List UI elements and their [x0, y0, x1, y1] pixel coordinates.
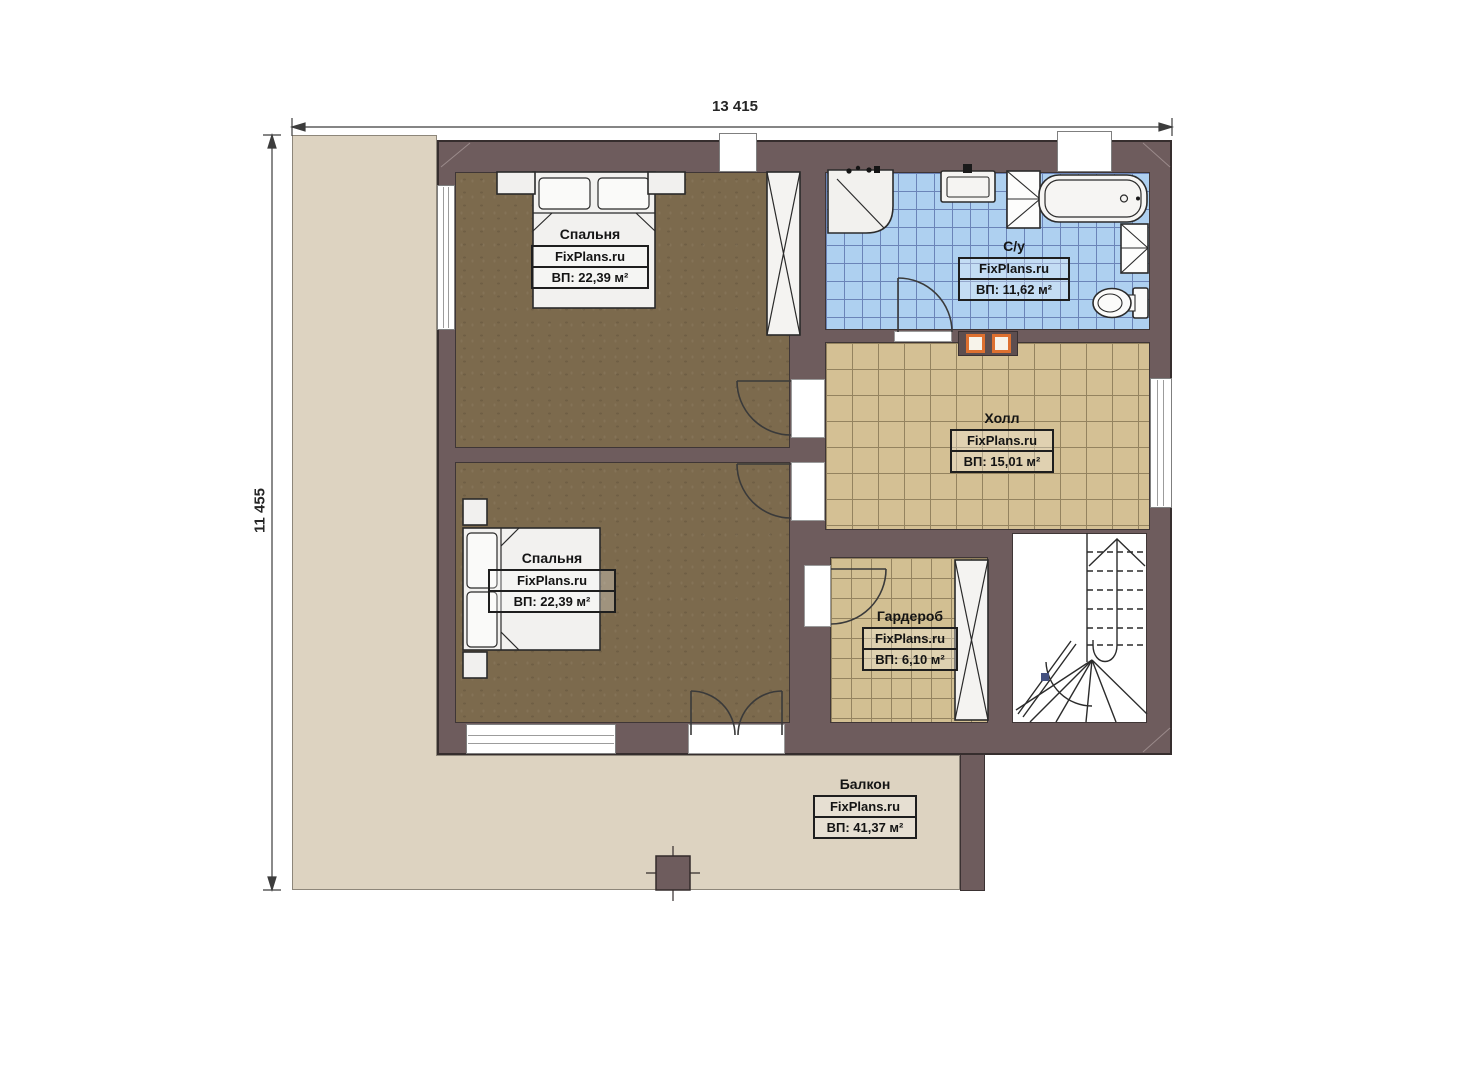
- stairwell: [1012, 533, 1147, 723]
- room-area: ВП: 22,39 м²: [490, 592, 614, 611]
- room-name: Спальня: [488, 550, 616, 566]
- door-opening-bedroom-top: [791, 379, 825, 438]
- fixplans-watermark: FixPlans.ru: [815, 797, 915, 818]
- room-area: ВП: 11,62 м²: [960, 280, 1068, 299]
- fixplans-watermark: FixPlans.ru: [864, 629, 956, 650]
- window-bottom-wall: [466, 724, 616, 754]
- room-floor-bedroom-top: [455, 172, 790, 448]
- room-name: Балкон: [813, 776, 917, 792]
- fixplans-watermark: FixPlans.ru: [960, 259, 1068, 280]
- room-area: ВП: 22,39 м²: [533, 268, 647, 287]
- room-label-balcony: Балкон FixPlans.ru ВП: 41,37 м²: [813, 776, 917, 839]
- dimension-width-label: 13 415: [660, 98, 810, 115]
- orange-square-icon: [966, 334, 985, 353]
- orange-square-icon: [992, 334, 1011, 353]
- hall-wall-stub: [958, 331, 1018, 356]
- room-label-hall: Холл FixPlans.ru ВП: 15,01 м²: [950, 410, 1054, 473]
- vent-shaft-top-1: [719, 133, 757, 172]
- vent-shaft-top-2: [1057, 131, 1112, 172]
- door-opening-balcony: [688, 724, 785, 754]
- floor-plan: 13 415 11 455: [0, 0, 1473, 1080]
- window-left-wall: [437, 185, 455, 330]
- dimension-height-label: 11 455: [252, 463, 269, 559]
- window-right-wall: [1150, 378, 1172, 508]
- door-opening-wardrobe: [804, 565, 831, 627]
- room-label-wardrobe: Гардероб FixPlans.ru ВП: 6,10 м²: [862, 608, 958, 671]
- room-name: С/у: [958, 238, 1070, 254]
- fixplans-watermark: FixPlans.ru: [952, 431, 1052, 452]
- room-area: ВП: 41,37 м²: [815, 818, 915, 837]
- balcony-terrace-left: [292, 135, 437, 890]
- room-name: Гардероб: [862, 608, 958, 624]
- room-area: ВП: 15,01 м²: [952, 452, 1052, 471]
- fixplans-watermark: FixPlans.ru: [533, 247, 647, 268]
- room-area: ВП: 6,10 м²: [864, 650, 956, 669]
- room-name: Холл: [950, 410, 1054, 426]
- door-opening-bathroom: [894, 331, 952, 342]
- room-label-bedroom-bottom: Спальня FixPlans.ru ВП: 22,39 м²: [488, 550, 616, 613]
- room-label-bathroom: С/у FixPlans.ru ВП: 11,62 м²: [958, 238, 1070, 301]
- fixplans-watermark: FixPlans.ru: [490, 571, 614, 592]
- balcony-edge-wall: [960, 750, 985, 891]
- room-name: Спальня: [531, 226, 649, 242]
- room-label-bedroom-top: Спальня FixPlans.ru ВП: 22,39 м²: [531, 226, 649, 289]
- door-opening-bedroom-bottom: [791, 462, 825, 521]
